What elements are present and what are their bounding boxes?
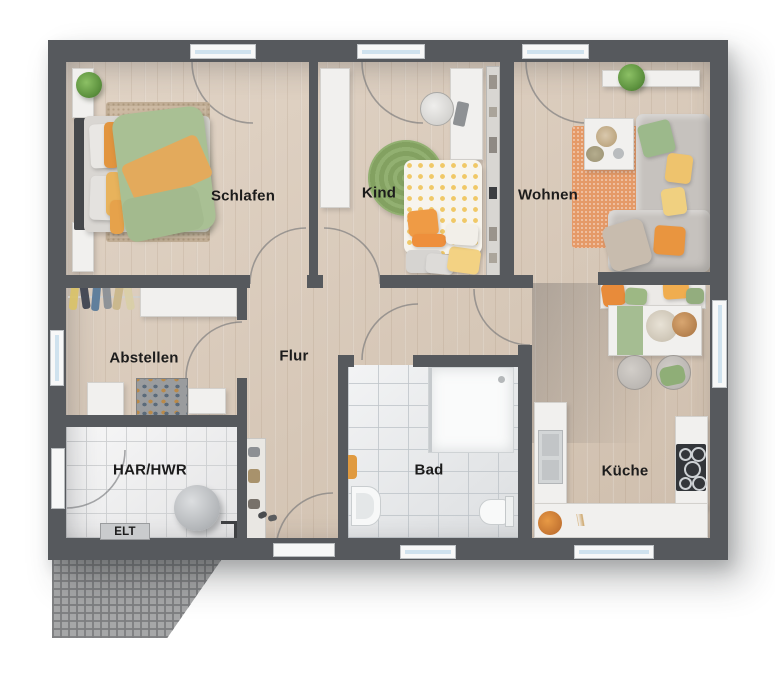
living-wall-shelf [602,70,700,87]
door-hwr-exterior [51,448,65,509]
double-bed [66,116,212,232]
shower-drain [498,376,505,383]
wall-pier-doors [307,275,323,288]
sofa-pillow-orange [653,225,686,256]
potted-plant-living [618,64,645,91]
wall-hwr-flur [237,378,247,538]
sofa-pillow-pale [660,186,688,216]
toilet-bowl [479,499,507,525]
wall-wohnen-kueche [598,272,710,285]
window-abstellen [50,330,64,386]
door-arc-schlafen [250,228,306,284]
room-label-kind: Kind [362,185,396,202]
wall-kind-wohnen [500,62,514,275]
kids-bed [404,160,482,275]
wall-schlafen-kind [309,62,318,277]
sofa-pillow-yellow [664,153,693,185]
floor-plan: Schlafen Kind Wohnen Abstellen Flur HAR/… [0,0,775,690]
window-kind [357,44,425,59]
window-swing-kind [362,62,423,123]
decor-dried-plant [586,146,604,162]
toilet-tank [505,496,514,527]
kids-wardrobe [320,68,350,208]
dining-chair-left [617,355,652,390]
wall-abstellen-hwr [66,415,237,427]
decor-twig [566,514,594,526]
door-arc-kind [324,228,380,284]
window-swing-wohnen [526,62,587,123]
shower-glass [429,368,432,452]
table-bowl [672,312,697,337]
kitchen-sink [538,430,563,484]
shoe-rack [136,378,188,418]
decor-tray [596,126,617,147]
potted-plant-bedroom [76,72,102,98]
room-label-flur: Flur [279,348,308,365]
window-wohnen [522,44,589,59]
wall-schlafen-flur [66,275,250,288]
door-arc-kueche [474,289,530,345]
washing-machine [87,382,124,417]
door-arc-abstellen [186,322,242,378]
wall-bad-flur [338,355,348,538]
room-label-kueche: Küche [602,463,649,480]
door-entrance [273,543,335,557]
water-heater-tank [174,485,220,531]
window-bad [400,545,456,559]
fruit-bowl [538,511,562,535]
duct-mark-v [234,521,237,538]
room-label-schlafen: Schlafen [211,188,275,205]
coat-rack [68,282,140,324]
door-arc-hwr-exterior [67,450,125,508]
room-label-elt: ELT [114,526,135,538]
wall-abstellen-flur-top [237,288,247,320]
bench-pillow-green2 [686,288,704,304]
shower [428,367,514,453]
table-runner [617,306,643,355]
room-label-wohnen: Wohnen [518,187,578,204]
cooktop [676,444,706,491]
bathroom-sink [351,486,381,526]
room-label-har-hwr: HAR/HWR [113,462,187,479]
wall-bad-top-right [413,355,518,367]
kids-wall-shelf [486,66,500,276]
room-label-bad: Bad [415,462,444,479]
wall-bad-kueche [518,345,532,538]
bench-pillow-green [624,287,647,305]
wall-kind-flur [380,275,533,288]
window-essplatz [712,300,727,388]
window-kueche [574,545,654,559]
decor-vase [613,148,624,159]
bench-pillow-orange [600,281,626,307]
door-arc-bad [362,304,418,360]
storage-box [188,388,226,414]
window-schlafen [190,44,256,59]
desk-chair [420,92,454,126]
room-label-abstellen: Abstellen [109,350,178,367]
